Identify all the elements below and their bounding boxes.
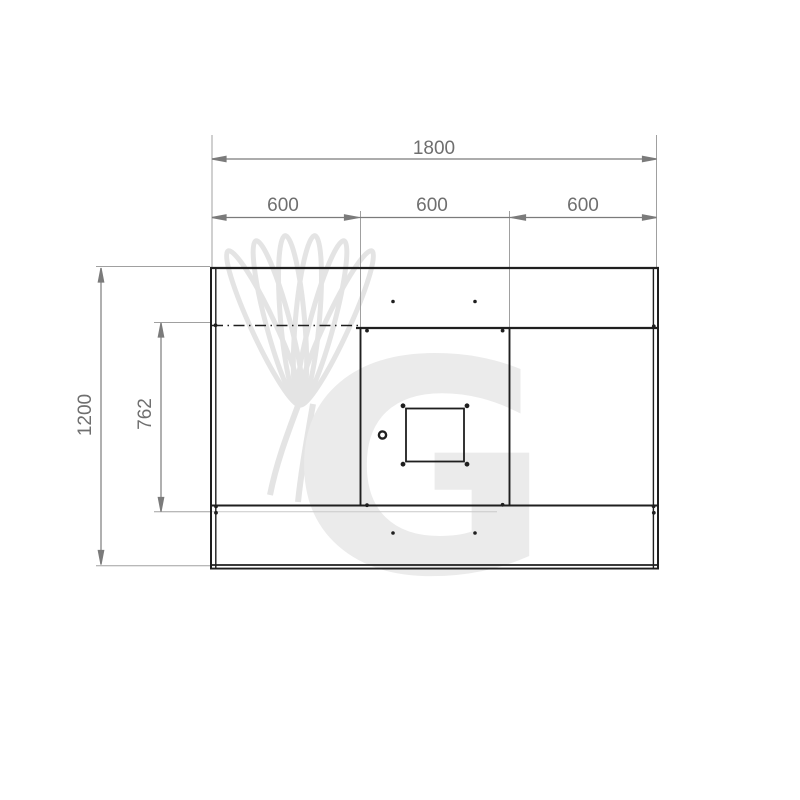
screw-dot <box>401 403 406 408</box>
screw-dot <box>465 403 470 408</box>
arrowhead-down-icon <box>98 551 103 565</box>
dimension-overall-height <box>98 268 103 565</box>
arrowhead-right-icon <box>643 156 657 161</box>
dim-label-overall-height: 1200 <box>75 394 96 436</box>
dim-label-section-3: 600 <box>567 195 599 216</box>
junction-dot <box>214 505 218 509</box>
junction-dot <box>501 329 505 333</box>
dim-label-inner-depth: 762 <box>135 398 156 430</box>
arrowhead-left-icon <box>212 156 226 161</box>
arrowhead-left-icon <box>512 215 526 220</box>
junction-dot <box>501 503 505 507</box>
drawing-canvas: G <box>0 0 800 800</box>
arrowhead-left-icon <box>212 215 226 220</box>
junction-dot <box>652 324 656 328</box>
arrowhead-right-icon <box>345 215 359 220</box>
junction-dot <box>652 511 656 515</box>
screw-dot <box>401 462 406 467</box>
junction-dot <box>214 511 218 515</box>
rivet-dot <box>391 300 395 304</box>
rivet-dot <box>473 531 477 535</box>
junction-dot <box>365 329 369 333</box>
junction-dot <box>652 504 656 508</box>
arrowhead-down-icon <box>158 498 163 512</box>
junction-dot <box>214 323 218 327</box>
rivet-dot <box>473 300 477 304</box>
technical-drawing: G <box>0 0 800 800</box>
arrowhead-right-icon <box>643 215 657 220</box>
dim-label-overall-width: 1800 <box>413 138 455 159</box>
watermark-letter: G <box>288 298 553 642</box>
junction-dot <box>365 503 369 507</box>
screw-dot <box>465 462 470 467</box>
dim-label-section-2: 600 <box>416 195 448 216</box>
rivet-dot <box>391 531 395 535</box>
dim-label-section-1: 600 <box>267 195 299 216</box>
dimension-inner-depth <box>158 323 163 512</box>
arrowhead-up-icon <box>158 323 163 337</box>
arrowhead-up-icon <box>98 268 103 282</box>
